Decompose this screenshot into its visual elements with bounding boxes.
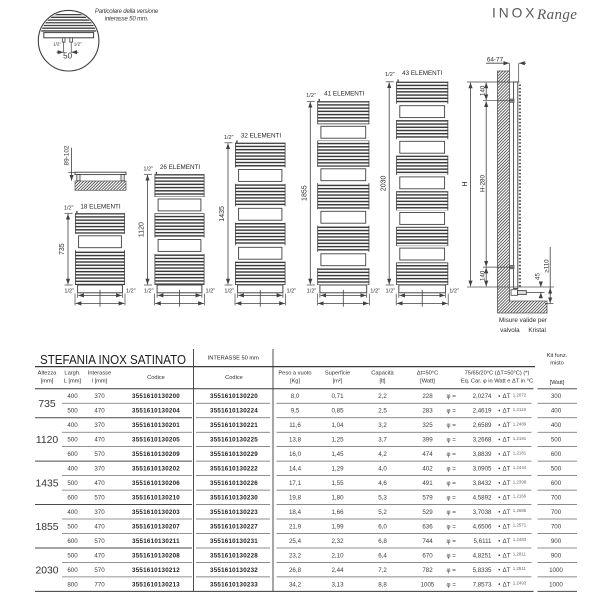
svg-text:misto: misto	[550, 360, 564, 366]
svg-text:570: 570	[94, 538, 105, 545]
svg-text:17,1: 17,1	[289, 480, 302, 487]
svg-text:570: 570	[94, 451, 105, 458]
svg-text:ΔT: ΔT	[503, 422, 511, 429]
svg-text:[Kg]: [Kg]	[290, 378, 301, 384]
svg-text:6,8: 6,8	[378, 538, 387, 545]
svg-text:500: 500	[551, 437, 562, 444]
svg-text:ΔT: ΔT	[503, 451, 511, 458]
svg-text:3,7038: 3,7038	[473, 509, 492, 516]
svg-text:4,0: 4,0	[378, 466, 387, 473]
svg-text:Range: Range	[536, 7, 577, 23]
svg-text:579: 579	[422, 495, 433, 502]
svg-text:400: 400	[67, 393, 78, 400]
svg-text:φ =: φ =	[447, 466, 457, 473]
svg-text:φ =: φ =	[447, 581, 457, 588]
svg-text:l [mm]: l [mm]	[92, 378, 108, 384]
svg-text:0,71: 0,71	[331, 393, 344, 400]
svg-text:1/2”: 1/2”	[64, 289, 74, 295]
svg-text:1,2811: 1,2811	[513, 552, 527, 557]
svg-text:140: 140	[480, 270, 487, 281]
svg-text:13,8: 13,8	[289, 437, 302, 444]
svg-text:3551610130232: 3551610130232	[210, 567, 258, 574]
svg-text:Codice: Codice	[147, 375, 165, 381]
svg-text:800: 800	[67, 581, 78, 588]
svg-text:18 ELEMENTI: 18 ELEMENTI	[80, 204, 120, 211]
svg-text:2,4619: 2,4619	[473, 408, 492, 415]
svg-text:470: 470	[94, 480, 105, 487]
svg-text:1,99: 1,99	[331, 523, 344, 530]
svg-text:25,4: 25,4	[289, 538, 302, 545]
svg-text:7,8573: 7,8573	[473, 581, 492, 588]
svg-text:470: 470	[94, 523, 105, 530]
svg-text:636: 636	[422, 523, 433, 530]
svg-text:600: 600	[551, 451, 562, 458]
svg-text:735: 735	[59, 243, 66, 255]
svg-text:1,04: 1,04	[331, 422, 344, 429]
svg-text:4,6506: 4,6506	[473, 523, 492, 530]
svg-text:3551610130210: 3551610130210	[132, 495, 180, 502]
svg-text:600: 600	[67, 567, 78, 574]
svg-text:3551610130206: 3551610130206	[132, 480, 180, 487]
svg-text:8,0: 8,0	[291, 393, 300, 400]
svg-text:500: 500	[67, 437, 78, 444]
svg-text:1120: 1120	[36, 435, 59, 446]
svg-text:ΔT: ΔT	[503, 466, 511, 473]
svg-text:[mm]: [mm]	[41, 378, 54, 384]
svg-text:1,2166: 1,2166	[513, 494, 527, 499]
svg-text:1/2”: 1/2”	[370, 289, 380, 295]
svg-text:1/2”: 1/2”	[449, 289, 459, 295]
svg-text:1/2”: 1/2”	[206, 289, 216, 295]
svg-text:470: 470	[94, 552, 105, 559]
svg-text:≥110: ≥110	[544, 259, 551, 273]
svg-text:1/2”: 1/2”	[307, 289, 317, 295]
svg-text:370: 370	[94, 422, 105, 429]
svg-text:600: 600	[551, 480, 562, 487]
svg-text:26,8: 26,8	[289, 567, 302, 574]
svg-text:5,3: 5,3	[378, 495, 387, 502]
svg-text:ΔT: ΔT	[503, 523, 511, 530]
svg-text:[Watt]: [Watt]	[550, 380, 565, 386]
svg-text:1/2”: 1/2”	[144, 289, 154, 295]
svg-text:1,2118: 1,2118	[513, 407, 527, 412]
svg-text:1,2072: 1,2072	[513, 392, 527, 397]
svg-text:φ =: φ =	[447, 480, 457, 487]
svg-text:700: 700	[551, 495, 562, 502]
svg-text:0,85: 0,85	[331, 408, 344, 415]
svg-text:529: 529	[422, 509, 433, 516]
svg-text:670: 670	[422, 552, 433, 559]
svg-text:3,2668: 3,2668	[473, 437, 492, 444]
svg-text:491: 491	[422, 480, 433, 487]
svg-text:5,8335: 5,8335	[473, 567, 492, 574]
svg-text:140: 140	[480, 85, 487, 96]
svg-text:3551610130226: 3551610130226	[210, 480, 258, 487]
svg-text:11,6: 11,6	[289, 422, 301, 429]
svg-text:1,29: 1,29	[331, 466, 344, 473]
svg-text:1,2685: 1,2685	[513, 508, 527, 513]
svg-text:700: 700	[551, 523, 562, 530]
svg-text:5,6111: 5,6111	[473, 538, 492, 545]
svg-text:1000: 1000	[549, 567, 563, 574]
svg-text:1,2444: 1,2444	[513, 465, 527, 470]
svg-text:399: 399	[422, 437, 433, 444]
svg-text:Kit funz.: Kit funz.	[547, 353, 568, 359]
svg-text:Peso a vuoto: Peso a vuoto	[278, 370, 311, 376]
svg-text:Interasse: Interasse	[88, 370, 111, 376]
svg-text:1/2”: 1/2”	[287, 289, 297, 295]
svg-text:370: 370	[94, 466, 105, 473]
svg-text:ΔT: ΔT	[503, 480, 511, 487]
svg-text:3551610130228: 3551610130228	[210, 552, 258, 559]
svg-text:402: 402	[422, 466, 433, 473]
svg-text:Particolare della versione: Particolare della versione	[95, 8, 159, 15]
svg-text:H-280: H-280	[480, 175, 487, 192]
svg-text:500: 500	[67, 480, 78, 487]
svg-text:3551610130233: 3551610130233	[210, 581, 258, 588]
svg-text:50: 50	[63, 52, 72, 61]
svg-text:600: 600	[67, 538, 78, 545]
svg-text:ΔT: ΔT	[503, 552, 511, 559]
svg-text:Δt=50°C: Δt=50°C	[417, 370, 438, 376]
svg-text:3551610130213: 3551610130213	[132, 581, 180, 588]
svg-text:3551610130212: 3551610130212	[132, 567, 180, 574]
svg-text:3,8839: 3,8839	[473, 451, 492, 458]
svg-text:3551610130225: 3551610130225	[210, 437, 258, 444]
svg-text:1,55: 1,55	[331, 480, 344, 487]
svg-text:19,8: 19,8	[289, 495, 302, 502]
svg-text:3551610130222: 3551610130222	[210, 466, 258, 473]
svg-text:1,2483: 1,2483	[513, 537, 527, 542]
svg-text:18,4: 18,4	[289, 509, 302, 516]
svg-text:700: 700	[551, 509, 562, 516]
svg-text:2,32: 2,32	[331, 538, 344, 545]
svg-text:STEFANIA INOX SATINATO: STEFANIA INOX SATINATO	[40, 352, 186, 367]
svg-text:interasse 50 mm.: interasse 50 mm.	[105, 15, 149, 22]
svg-text:2,2: 2,2	[378, 393, 387, 400]
svg-text:3551610130201: 3551610130201	[132, 422, 180, 429]
svg-text:Misure valide per: Misure valide per	[499, 317, 547, 324]
svg-text:3,0905: 3,0905	[473, 466, 492, 473]
svg-text:[m²]: [m²]	[333, 378, 343, 384]
svg-text:ΔT: ΔT	[503, 408, 511, 415]
svg-text:16,0: 16,0	[289, 451, 302, 458]
svg-text:3551610130200: 3551610130200	[132, 393, 180, 400]
svg-text:4,8251: 4,8251	[473, 552, 492, 559]
svg-text:φ =: φ =	[447, 393, 457, 400]
svg-text:Capacità: Capacità	[371, 370, 394, 376]
svg-text:370: 370	[94, 393, 105, 400]
svg-text:6,0: 6,0	[378, 523, 387, 530]
svg-text:2,0274: 2,0274	[473, 393, 492, 400]
svg-text:400: 400	[551, 422, 562, 429]
svg-text:1435: 1435	[219, 206, 226, 222]
svg-text:7,2: 7,2	[378, 567, 387, 574]
svg-text:1855: 1855	[301, 185, 308, 201]
svg-text:6,4: 6,4	[378, 552, 387, 559]
svg-text:470: 470	[94, 408, 105, 415]
svg-text:Largh.: Largh.	[64, 370, 81, 376]
svg-text:φ =: φ =	[447, 437, 457, 444]
svg-text:3551610130208: 3551610130208	[132, 552, 180, 559]
svg-text:φ =: φ =	[447, 509, 457, 516]
svg-text:9,5: 9,5	[291, 408, 300, 415]
svg-text:5,2: 5,2	[378, 509, 387, 516]
svg-text:1,25: 1,25	[331, 437, 344, 444]
svg-text:1/2”: 1/2”	[306, 93, 316, 99]
svg-text:1005: 1005	[421, 581, 435, 588]
svg-text:1,2398: 1,2398	[513, 479, 527, 484]
svg-text:[Watt]: [Watt]	[420, 378, 435, 384]
svg-text:41 ELEMENTI: 41 ELEMENTI	[324, 91, 364, 98]
svg-text:4,5892: 4,5892	[473, 495, 492, 502]
svg-text:1,2511: 1,2511	[513, 566, 527, 571]
svg-text:600: 600	[67, 495, 78, 502]
svg-text:500: 500	[67, 552, 78, 559]
svg-text:ΔT: ΔT	[503, 581, 511, 588]
svg-text:[lt]: [lt]	[379, 378, 385, 384]
svg-text:φ =: φ =	[447, 567, 457, 574]
svg-text:32 ELEMENTI: 32 ELEMENTI	[241, 133, 281, 140]
svg-text:14,4: 14,4	[289, 466, 302, 473]
svg-text:φ =: φ =	[447, 408, 457, 415]
svg-text:1,2181: 1,2181	[513, 450, 527, 455]
svg-text:1,45: 1,45	[331, 451, 344, 458]
svg-text:3551610130221: 3551610130221	[210, 422, 258, 429]
svg-text:3551610130202: 3551610130202	[132, 466, 180, 473]
svg-text:ΔT: ΔT	[503, 437, 511, 444]
svg-text:34,2: 34,2	[289, 581, 302, 588]
svg-text:8,8: 8,8	[378, 581, 387, 588]
svg-text:1/2”: 1/2”	[126, 289, 136, 295]
svg-text:1/2”: 1/2”	[224, 289, 234, 295]
svg-text:735: 735	[38, 399, 56, 410]
svg-text:3551610130224: 3551610130224	[210, 408, 258, 415]
svg-text:570: 570	[94, 567, 105, 574]
svg-text:1435: 1435	[35, 478, 58, 489]
svg-text:782: 782	[422, 567, 433, 574]
svg-text:3551610130220: 3551610130220	[210, 393, 258, 400]
svg-text:900: 900	[551, 552, 562, 559]
svg-text:3,2: 3,2	[378, 422, 387, 429]
svg-text:370: 370	[94, 509, 105, 516]
svg-text:1/2”: 1/2”	[385, 72, 395, 78]
svg-text:300: 300	[551, 393, 562, 400]
svg-text:89-102: 89-102	[63, 145, 70, 165]
svg-text:400: 400	[67, 466, 78, 473]
svg-text:283: 283	[422, 408, 433, 415]
svg-text:INTERASSE 50 mm: INTERASSE 50 mm	[208, 356, 259, 362]
svg-text:2,44: 2,44	[331, 567, 344, 574]
svg-text:1/2”: 1/2”	[143, 166, 153, 172]
svg-text:570: 570	[94, 495, 105, 502]
svg-text:474: 474	[422, 451, 433, 458]
svg-text:3551610130230: 3551610130230	[210, 495, 258, 502]
svg-text:1,80: 1,80	[331, 495, 344, 502]
svg-text:2,5: 2,5	[378, 408, 387, 415]
svg-text:Eq. Car. φ in Watt e ΔT in °C: Eq. Car. φ in Watt e ΔT in °C	[461, 378, 533, 384]
svg-text:744: 744	[422, 538, 433, 545]
svg-text:Codice: Codice	[225, 375, 243, 381]
svg-text:ΔT: ΔT	[503, 495, 511, 502]
svg-text:2,6589: 2,6589	[473, 422, 492, 429]
svg-text:3551610130203: 3551610130203	[132, 509, 180, 516]
svg-text:1/2”: 1/2”	[53, 41, 61, 46]
svg-text:228: 228	[422, 393, 433, 400]
svg-text:valvola Kristal: valvola Kristal	[500, 327, 546, 334]
svg-text:1,2191: 1,2191	[513, 436, 527, 441]
svg-text:3,8432: 3,8432	[473, 480, 492, 487]
svg-text:500: 500	[551, 466, 562, 473]
svg-text:ΔT: ΔT	[503, 393, 511, 400]
svg-text:Superficie: Superficie	[325, 370, 350, 376]
svg-text:4,2: 4,2	[378, 451, 387, 458]
svg-text:φ =: φ =	[447, 538, 457, 545]
svg-text:1,2489: 1,2489	[513, 421, 527, 426]
svg-text:23,2: 23,2	[289, 552, 302, 559]
svg-text:1120: 1120	[139, 222, 146, 237]
svg-text:1855: 1855	[35, 522, 58, 533]
svg-text:φ =: φ =	[447, 495, 457, 502]
svg-text:26 ELEMENTI: 26 ELEMENTI	[160, 164, 200, 171]
svg-text:1,66: 1,66	[331, 509, 344, 516]
svg-text:3551610130223: 3551610130223	[210, 509, 258, 516]
svg-text:470: 470	[94, 437, 105, 444]
svg-text:1/2”: 1/2”	[224, 135, 234, 141]
svg-text:INOX: INOX	[492, 6, 537, 21]
svg-text:1/2”: 1/2”	[74, 41, 82, 46]
svg-text:21,9: 21,9	[289, 523, 302, 530]
svg-text:400: 400	[67, 422, 78, 429]
svg-text:1/2”: 1/2”	[64, 206, 74, 212]
svg-text:φ =: φ =	[447, 422, 457, 429]
svg-text:2030: 2030	[35, 565, 58, 576]
svg-text:φ =: φ =	[447, 552, 457, 559]
svg-text:Altezza: Altezza	[38, 370, 57, 376]
svg-text:3,13: 3,13	[331, 581, 344, 588]
svg-text:ΔT: ΔT	[503, 567, 511, 574]
svg-text:45: 45	[534, 273, 541, 280]
svg-text:ΔT: ΔT	[503, 509, 511, 516]
svg-text:75/65/20°C (ΔT=50°C) (*): 75/65/20°C (ΔT=50°C) (*)	[465, 370, 530, 376]
svg-text:1000: 1000	[549, 581, 563, 588]
svg-text:φ =: φ =	[447, 523, 457, 530]
svg-text:500: 500	[67, 408, 78, 415]
svg-text:2030: 2030	[380, 176, 387, 192]
svg-text:900: 900	[551, 538, 562, 545]
svg-text:3551610130227: 3551610130227	[210, 523, 258, 530]
svg-text:φ =: φ =	[447, 451, 457, 458]
svg-text:64-77: 64-77	[487, 57, 504, 64]
svg-text:1/2”: 1/2”	[386, 289, 396, 295]
svg-text:L [mm]: L [mm]	[64, 378, 82, 384]
svg-text:2,10: 2,10	[331, 552, 344, 559]
svg-text:3551610130204: 3551610130204	[132, 408, 180, 415]
svg-text:H: H	[460, 181, 469, 186]
svg-text:325: 325	[422, 422, 433, 429]
svg-text:400: 400	[67, 509, 78, 516]
svg-text:400: 400	[551, 408, 562, 415]
svg-text:ΔT: ΔT	[503, 538, 511, 545]
svg-text:3551610130231: 3551610130231	[210, 538, 258, 545]
svg-text:3551610130209: 3551610130209	[132, 451, 180, 458]
svg-text:4,6: 4,6	[378, 480, 387, 487]
svg-text:1,2571: 1,2571	[513, 523, 527, 528]
svg-text:1,2493: 1,2493	[513, 581, 527, 586]
svg-text:770: 770	[94, 581, 105, 588]
svg-text:500: 500	[67, 523, 78, 530]
svg-text:600: 600	[67, 451, 78, 458]
svg-text:3551610130211: 3551610130211	[132, 538, 180, 545]
svg-text:3551610130205: 3551610130205	[132, 437, 180, 444]
svg-text:3,7: 3,7	[378, 437, 387, 444]
svg-text:3551610130229: 3551610130229	[210, 451, 258, 458]
svg-text:43 ELEMENTI: 43 ELEMENTI	[402, 70, 442, 77]
svg-text:3551610130207: 3551610130207	[132, 523, 180, 530]
